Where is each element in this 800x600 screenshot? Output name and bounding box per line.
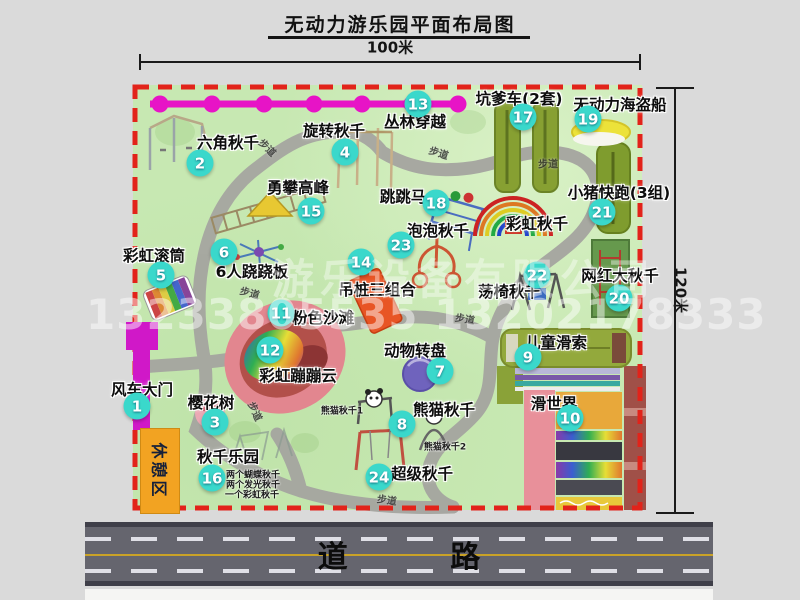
- attraction-badge-4: 4: [332, 139, 359, 166]
- walkway-label: 步道: [238, 282, 261, 302]
- attraction-badge-21: 21: [589, 199, 616, 226]
- attraction-badge-9: 9: [515, 344, 542, 371]
- attraction-label-8: 熊猫秋千: [413, 398, 475, 420]
- attraction-badge-24: 24: [366, 464, 393, 491]
- map-sub-label: 一个彩虹秋千: [225, 488, 279, 501]
- walkway-label: 步道: [538, 156, 558, 171]
- attraction-badge-8: 8: [389, 411, 416, 438]
- attraction-badge-5: 5: [148, 262, 175, 289]
- attraction-label-14: 吊桩三组合: [338, 278, 416, 300]
- attraction-badge-16: 16: [199, 465, 226, 492]
- attraction-badge-23: 23: [388, 232, 415, 259]
- attraction-label-21: 小猪快跑(3组): [568, 181, 670, 203]
- attraction-badge-3: 3: [202, 409, 229, 436]
- walkway-label: 步道: [376, 490, 398, 508]
- attraction-label-2: 六角秋千: [197, 131, 259, 153]
- walkway-label: 步道: [454, 309, 476, 327]
- markers-layer: 1风车大门2六角秋千3樱花树4旋转秋千5彩虹滚筒66人跷跷板7动物转盘8熊猫秋千…: [0, 0, 800, 600]
- attraction-badge-20: 20: [606, 285, 633, 312]
- walkway-label: 步道: [427, 142, 451, 162]
- attraction-badge-15: 15: [298, 198, 325, 225]
- attraction-badge-1: 1: [124, 393, 151, 420]
- attraction-badge-10: 10: [557, 405, 584, 432]
- park-plan-image: 无动力游乐园平面布局图 100米 120米: [0, 0, 800, 600]
- attraction-badge-12: 12: [257, 337, 284, 364]
- attraction-badge-11: 11: [268, 300, 295, 327]
- attraction-badge-13: 13: [405, 91, 432, 118]
- attraction-label-15: 勇攀高峰: [267, 176, 329, 198]
- attraction-label-4: 旋转秋千: [303, 119, 365, 141]
- attraction-label-16: 秋千乐园: [197, 445, 259, 467]
- attraction-label-12: 彩虹蹦蹦云: [259, 364, 337, 386]
- attraction-label-20: 网红大秋千: [581, 264, 659, 286]
- map-sub-label: 熊猫秋千2: [424, 440, 466, 453]
- attraction-label-24: 超级秋千: [391, 462, 453, 484]
- map-sub-label: 熊猫秋千1: [321, 404, 363, 417]
- attraction-badge-6: 6: [211, 239, 238, 266]
- attraction-badge-7: 7: [427, 358, 454, 385]
- attraction-badge-19: 19: [575, 106, 602, 133]
- walkway-label: 步道: [245, 399, 267, 423]
- attraction-label-23: 泡泡秋千: [407, 219, 469, 241]
- attraction-label-18: 跳跳马: [380, 185, 427, 207]
- attraction-badge-17: 17: [510, 104, 537, 131]
- attraction-label-rainbow-swing: 彩虹秋千: [506, 212, 568, 234]
- attraction-label-11: 粉色沙滩: [292, 306, 354, 328]
- walkway-label: 步道: [256, 135, 281, 160]
- attraction-badge-2: 2: [187, 150, 214, 177]
- attraction-badge-22: 22: [524, 262, 551, 289]
- attraction-badge-14: 14: [348, 249, 375, 276]
- attraction-badge-18: 18: [423, 190, 450, 217]
